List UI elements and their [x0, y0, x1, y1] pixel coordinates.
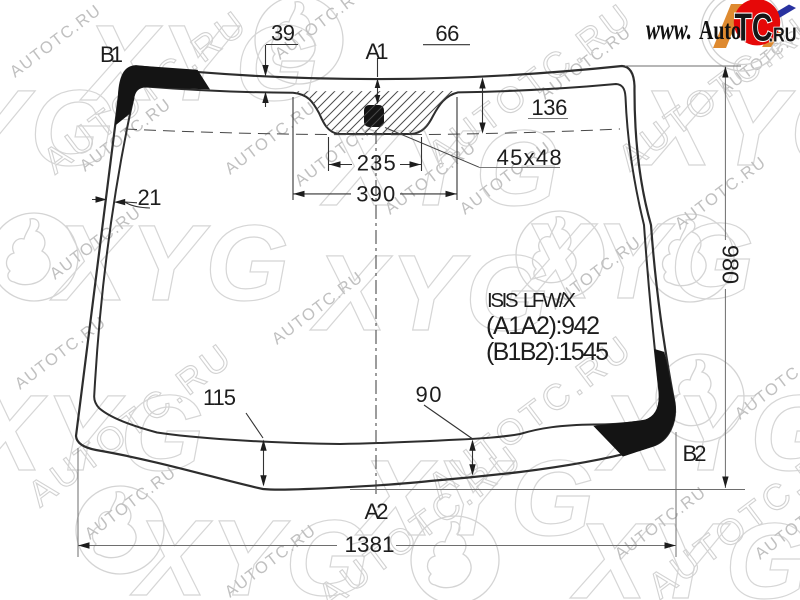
svg-text:A2: A2	[365, 499, 389, 524]
svg-text:235: 235	[357, 151, 396, 176]
svg-text:(B1B2):1545: (B1B2):1545	[486, 338, 609, 366]
svg-text:(A1A2):942: (A1A2):942	[486, 312, 600, 340]
svg-text:39: 39	[271, 21, 295, 46]
svg-text:www.: www.	[646, 13, 692, 46]
svg-text:1381: 1381	[345, 532, 395, 557]
svg-text:90: 90	[416, 382, 442, 407]
svg-text:B1: B1	[100, 42, 123, 67]
svg-text:980: 980	[718, 245, 744, 284]
svg-text:45x48: 45x48	[497, 145, 562, 170]
svg-text:.RU: .RU	[769, 23, 797, 46]
svg-text:TC: TC	[735, 7, 773, 50]
svg-text:A1: A1	[366, 39, 389, 64]
svg-text:21: 21	[138, 185, 162, 210]
svg-text:390: 390	[356, 181, 395, 206]
svg-text:115: 115	[203, 385, 236, 410]
svg-text:B2: B2	[683, 441, 707, 466]
svg-text:ISIS LFW/X: ISIS LFW/X	[487, 289, 576, 312]
svg-text:66: 66	[435, 21, 459, 46]
svg-text:136: 136	[531, 95, 567, 120]
